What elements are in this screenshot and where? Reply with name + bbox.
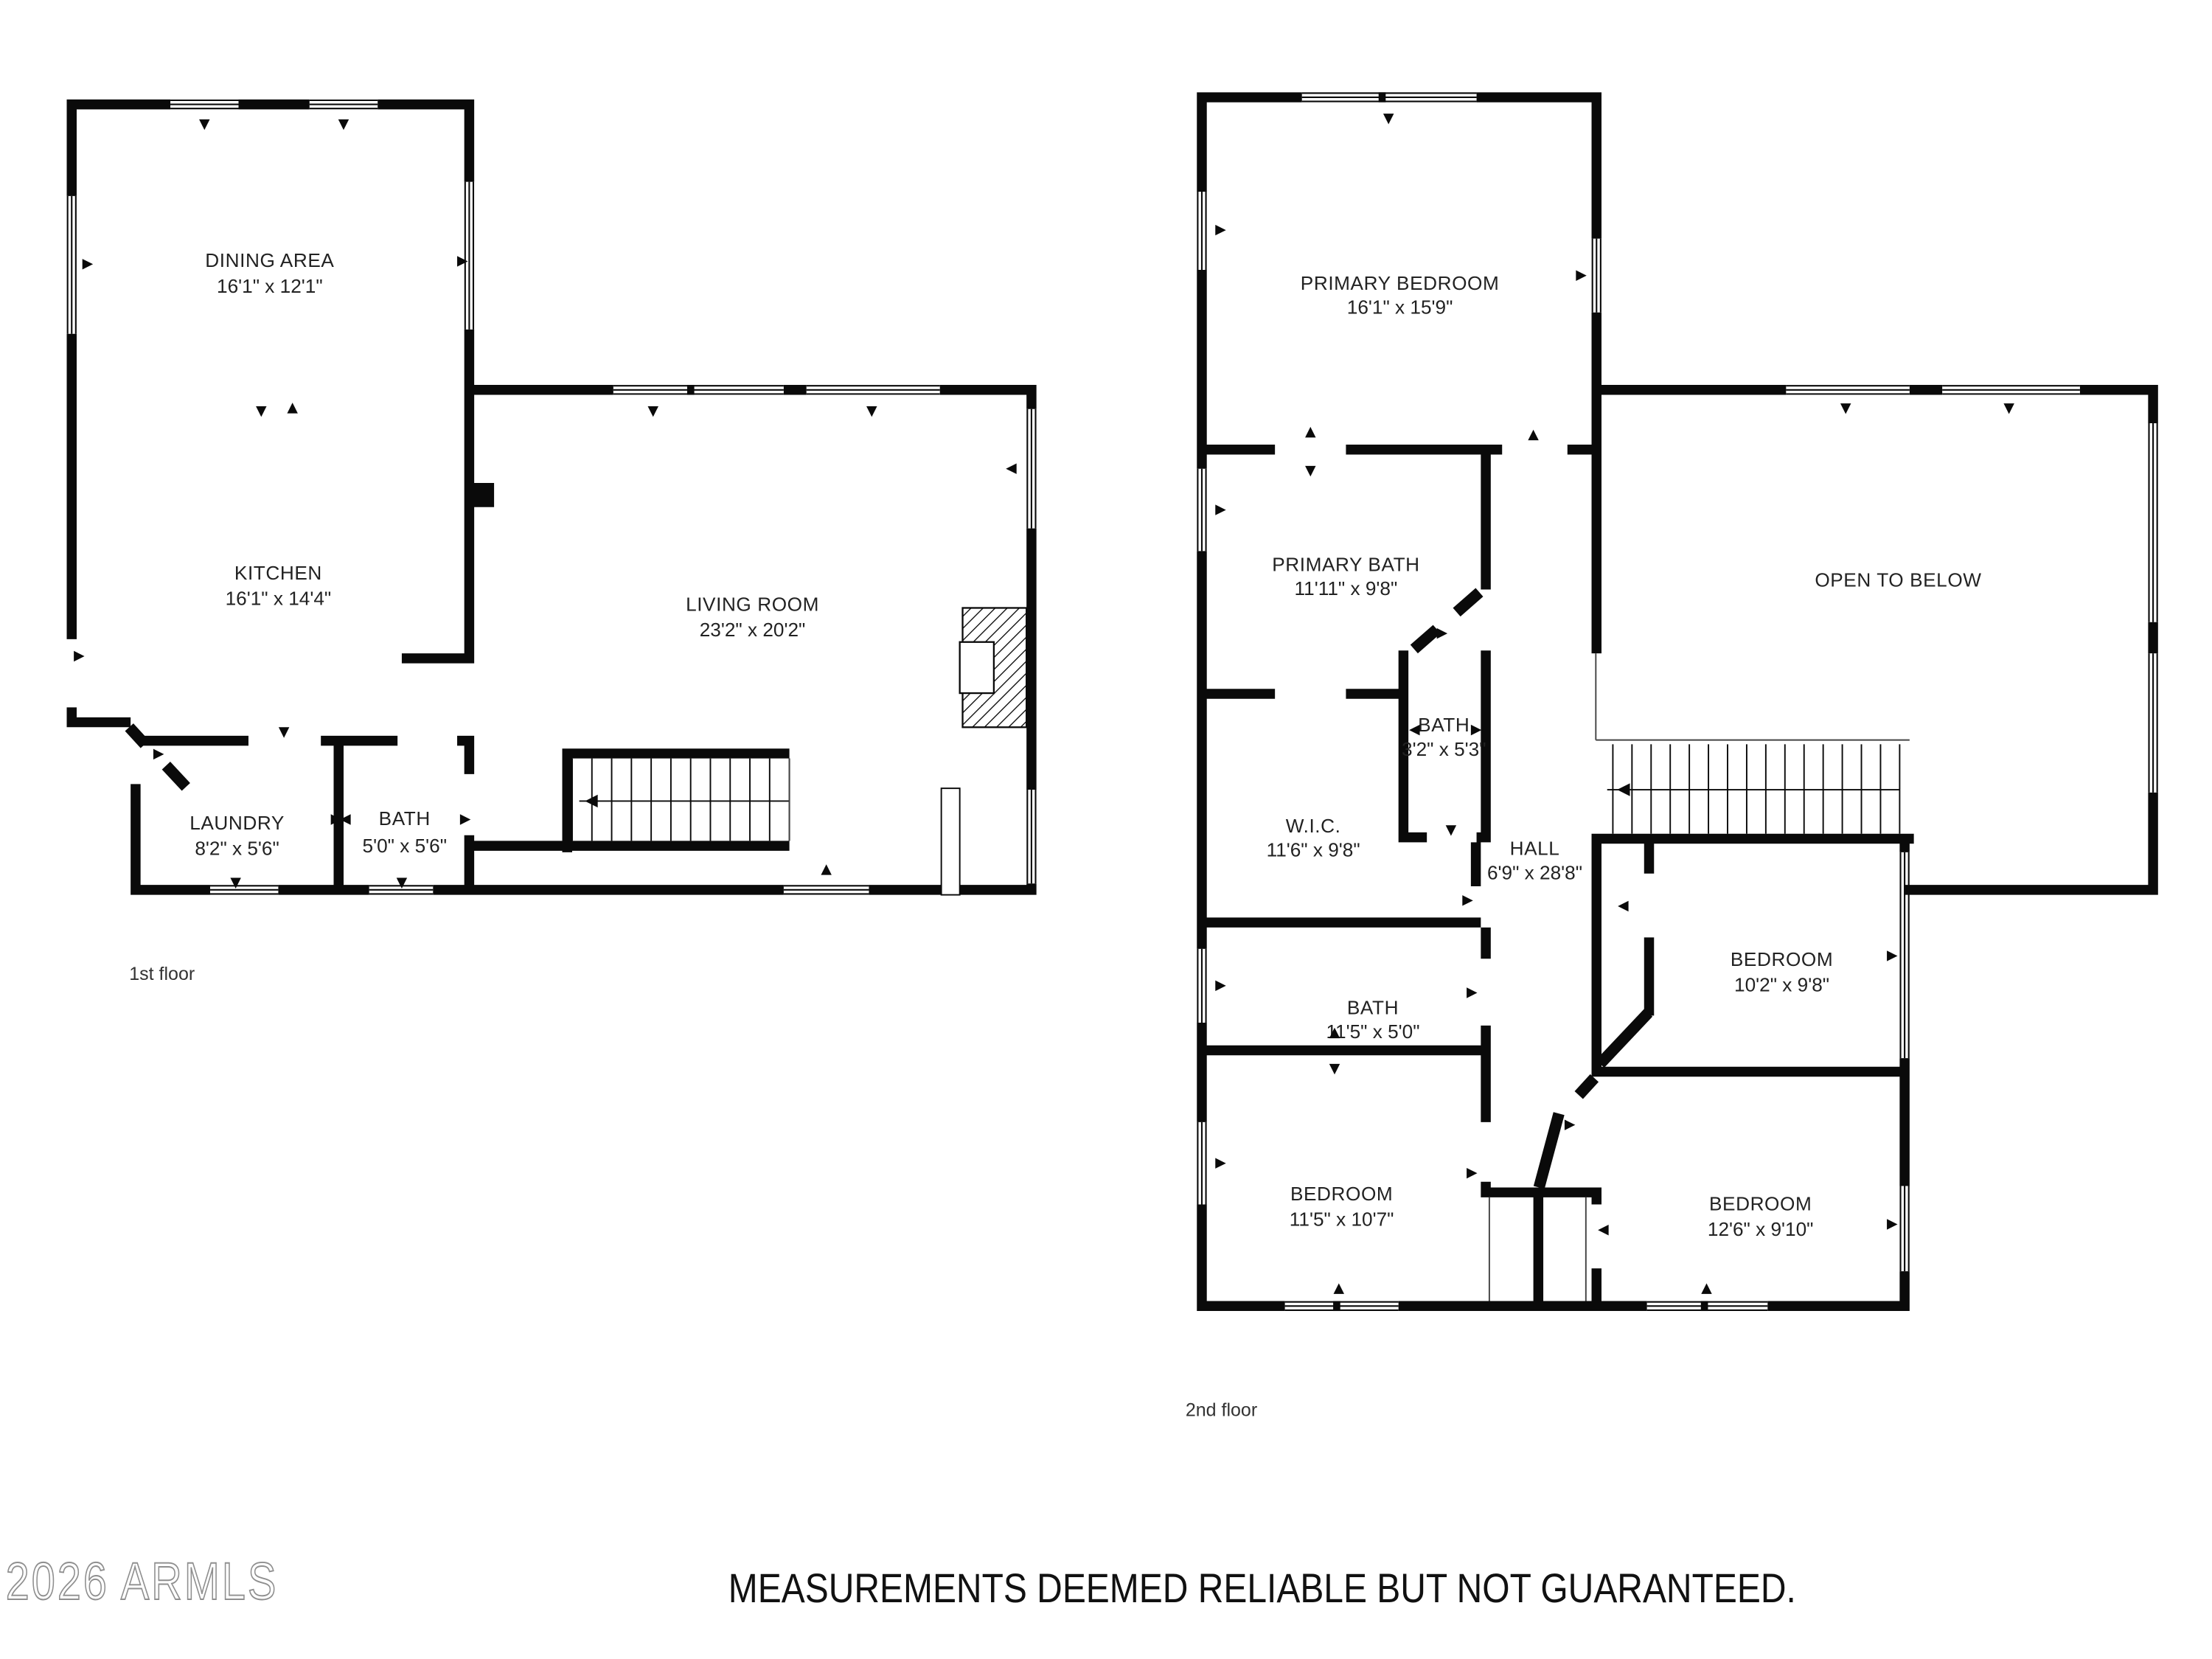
- opening-arrow-icon: [1887, 950, 1897, 961]
- opening-arrow-icon: [866, 406, 877, 417]
- window-symbol: [2149, 653, 2157, 793]
- window-symbol: [1027, 790, 1035, 883]
- window-symbol: [1942, 386, 2080, 394]
- window-mullion: [1379, 92, 1386, 102]
- window-symbol: [1197, 469, 1206, 552]
- window-symbol: [310, 100, 378, 108]
- opening-arrow-icon: [1215, 1158, 1225, 1168]
- window-symbol: [1786, 386, 1910, 394]
- opening-arrow-icon: [2003, 403, 2014, 414]
- room-dims-bath-1: 5'0" x 5'6": [363, 835, 447, 857]
- room-dims-bedroom-ne: 10'2" x 9'8": [1734, 974, 1829, 996]
- second-floor-caption: 2nd floor: [1186, 1400, 1257, 1421]
- bedroom12-diagonal-wall: [1539, 1078, 1594, 1187]
- opening-arrow-icon: [1467, 987, 1477, 998]
- window-mullion: [687, 385, 695, 394]
- room-dims-primary-bedroom: 16'1" x 15'9": [1347, 296, 1453, 319]
- room-label-laundry: LAUNDRY: [189, 812, 285, 834]
- opening-arrow-icon: [1462, 895, 1472, 905]
- window-symbol: [1901, 1186, 1909, 1272]
- room-dims-laundry: 8'2" x 5'6": [195, 838, 279, 860]
- room-label-dining-area: DINING AREA: [205, 249, 334, 271]
- room-label-bath-1: BATH: [379, 807, 431, 829]
- room-dims-living-room: 23'2" x 20'2": [700, 619, 806, 641]
- floor-plan-canvas: DINING AREA 16'1" x 12'1" KITCHEN 16'1" …: [0, 0, 2212, 1659]
- bedroom10-diagonal-wall: [1600, 1013, 1648, 1064]
- first-floor: DINING AREA 16'1" x 12'1" KITCHEN 16'1" …: [67, 100, 1037, 984]
- opening-arrow-icon: [1598, 1225, 1608, 1235]
- window-symbol: [613, 386, 784, 394]
- opening-arrow-icon: [287, 403, 297, 413]
- window-symbol: [68, 196, 76, 334]
- window-symbol: [784, 886, 869, 894]
- room-label-bath-2: BATH: [1347, 996, 1399, 1018]
- window-mullion: [1333, 1301, 1340, 1311]
- room-label-living-room: LIVING ROOM: [686, 593, 819, 615]
- disclaimer-text: MEASUREMENTS DEEMED RELIABLE BUT NOT GUA…: [728, 1565, 1796, 1611]
- first-floor-walls: [67, 100, 1037, 895]
- watermark-text: 2026 ARMLS: [6, 1552, 279, 1611]
- plan-symbols: [68, 92, 2157, 1311]
- room-dims-hall: 6'9" x 28'8": [1487, 861, 1582, 883]
- opening-arrow-icon: [199, 119, 209, 130]
- window-symbol: [210, 886, 278, 894]
- opening-arrow-icon: [230, 877, 240, 888]
- room-dims-bedroom-se: 12'6" x 9'10": [1708, 1218, 1814, 1240]
- opening-arrow-icon: [1305, 427, 1315, 437]
- window-symbol: [1197, 1122, 1206, 1205]
- room-label-bedroom-se: BEDROOM: [1709, 1192, 1812, 1214]
- window-symbol: [1197, 192, 1206, 270]
- opening-arrow-icon: [74, 651, 84, 661]
- opening-arrow-icon: [1215, 504, 1225, 515]
- opening-arrow-icon: [1006, 463, 1016, 473]
- room-dims-bath-small: 3'2" x 5'3": [1402, 738, 1486, 760]
- opening-arrow-icon: [1528, 430, 1538, 440]
- stair-direction-arrow-icon: [1617, 783, 1630, 796]
- room-label-bedroom-sw: BEDROOM: [1290, 1183, 1393, 1205]
- window-symbol: [1302, 93, 1477, 101]
- opening-arrow-icon: [1383, 114, 1394, 124]
- opening-arrow-icon: [1409, 725, 1419, 735]
- opening-arrow-icon: [1437, 628, 1447, 639]
- opening-arrow-icon: [1840, 403, 1851, 414]
- room-dims-dining-area: 16'1" x 12'1": [217, 275, 323, 297]
- room-dims-bedroom-sw: 11'5" x 10'7": [1290, 1208, 1394, 1230]
- opening-arrow-icon: [1887, 1219, 1897, 1229]
- opening-arrow-icon: [1576, 270, 1586, 280]
- room-dims-kitchen: 16'1" x 14'4": [226, 588, 332, 610]
- opening-arrow-icon: [338, 119, 349, 130]
- stair-treads: [572, 759, 790, 841]
- room-label-kitchen: KITCHEN: [234, 562, 322, 584]
- room-dims-primary-bath: 11'11" x 9'8": [1295, 577, 1398, 599]
- opening-arrow-icon: [457, 256, 467, 266]
- window-symbol: [1027, 409, 1035, 529]
- opening-arrow-icon: [1329, 1064, 1340, 1074]
- opening-arrow-icon: [1334, 1283, 1344, 1293]
- opening-arrow-icon: [279, 727, 289, 737]
- window-symbol: [2149, 423, 2157, 622]
- opening-arrow-icon: [1305, 466, 1315, 476]
- opening-arrow-icon: [460, 814, 470, 824]
- opening-arrow-icon: [83, 259, 93, 269]
- opening-arrow-icon: [1471, 725, 1481, 735]
- opening-arrow-icon: [1215, 981, 1225, 991]
- first-floor-caption: 1st floor: [129, 964, 195, 984]
- opening-arrow-icon: [1701, 1283, 1711, 1293]
- second-floor: PRIMARY BEDROOM 16'1" x 15'9" PRIMARY BA…: [1186, 92, 2158, 1420]
- room-label-primary-bedroom: PRIMARY BEDROOM: [1301, 272, 1500, 294]
- opening-arrow-icon: [1446, 825, 1456, 835]
- room-label-wic: W.I.C.: [1286, 815, 1341, 837]
- opening-arrow-icon: [648, 406, 658, 417]
- window-symbol: [1901, 852, 1909, 1058]
- opening-arrow-icon: [1215, 225, 1225, 235]
- room-label-hall: HALL: [1510, 838, 1560, 860]
- opening-arrow-icon: [1467, 1168, 1477, 1178]
- window-symbol: [465, 182, 473, 330]
- primary-bath-diagonal-wall: [1414, 592, 1480, 649]
- opening-arrow-icon: [397, 877, 407, 888]
- room-label-primary-bath: PRIMARY BATH: [1272, 553, 1419, 575]
- room-dims-bath-2: 11'5" x 5'0": [1326, 1020, 1419, 1043]
- room-label-open-to-below: OPEN TO BELOW: [1815, 569, 1981, 591]
- opening-arrow-icon: [256, 406, 266, 417]
- opening-arrow-icon: [153, 749, 164, 759]
- window-mullion: [1701, 1301, 1708, 1311]
- window-symbol: [1197, 949, 1206, 1023]
- window-symbol: [807, 386, 940, 394]
- stair-treads: [1607, 744, 1900, 833]
- opening-arrow-icon: [1565, 1119, 1575, 1130]
- room-label-bath-small: BATH: [1418, 714, 1470, 736]
- opening-arrow-icon: [1618, 901, 1628, 911]
- rear-door-slot: [942, 788, 960, 894]
- window-symbol: [1593, 239, 1601, 313]
- room-dims-wic: 11'6" x 9'8": [1267, 839, 1360, 861]
- opening-arrow-icon: [821, 864, 831, 874]
- window-symbol: [170, 100, 238, 108]
- room-label-bedroom-ne: BEDROOM: [1731, 948, 1833, 970]
- window-symbol: [1285, 1302, 1399, 1310]
- fireplace: [960, 608, 1027, 727]
